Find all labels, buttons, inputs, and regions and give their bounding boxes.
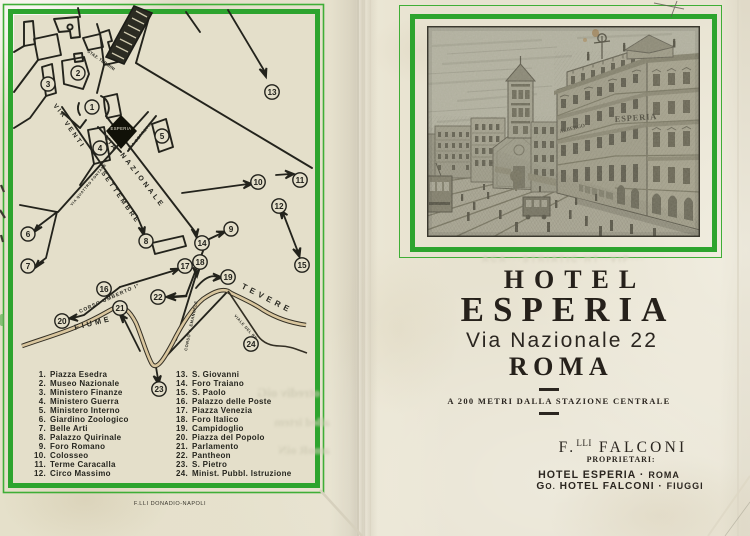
svg-text:14.: 14. — [176, 379, 188, 388]
svg-text:Ministero Finanze: Ministero Finanze — [50, 388, 123, 397]
svg-text:Terme Caracalla: Terme Caracalla — [50, 460, 116, 469]
svg-text:12.: 12. — [34, 469, 46, 478]
svg-text:20: 20 — [57, 317, 67, 326]
svg-text:8: 8 — [144, 237, 149, 246]
svg-text:2: 2 — [76, 69, 81, 78]
svg-text:13: 13 — [267, 88, 277, 97]
svg-text:15.: 15. — [176, 388, 188, 397]
svg-text:11: 11 — [296, 176, 305, 185]
svg-text:S. Giovanni: S. Giovanni — [192, 370, 239, 379]
svg-text:Piazza del Popolo: Piazza del Popolo — [192, 433, 265, 442]
svg-text:2.: 2. — [39, 379, 46, 388]
svg-text:1.: 1. — [39, 370, 46, 379]
svg-text:15: 15 — [297, 261, 307, 270]
svg-text:Circo Massimo: Circo Massimo — [50, 469, 111, 478]
svg-text:19: 19 — [223, 273, 233, 282]
svg-text:20.: 20. — [176, 433, 188, 442]
svg-text:Ministero Interno: Ministero Interno — [50, 406, 120, 415]
svg-text:Minist. Pubbl. Istruzione: Minist. Pubbl. Istruzione — [192, 469, 292, 478]
svg-text:Belle Arti: Belle Arti — [50, 424, 88, 433]
svg-text:24.: 24. — [176, 469, 188, 478]
svg-text:6: 6 — [26, 230, 31, 239]
svg-text:11.: 11. — [34, 460, 46, 469]
svg-text:17: 17 — [180, 262, 190, 271]
svg-text:12: 12 — [274, 202, 284, 211]
svg-text:18: 18 — [195, 258, 205, 267]
svg-text:S. Pietro: S. Pietro — [192, 460, 227, 469]
svg-text:5: 5 — [160, 132, 165, 141]
svg-text:Giardino Zoologico: Giardino Zoologico — [50, 415, 129, 424]
svg-text:F.LLI DONADIO-NAPOLI: F.LLI DONADIO-NAPOLI — [134, 501, 206, 507]
svg-text:Piazza Venezia: Piazza Venezia — [192, 406, 252, 415]
svg-text:4: 4 — [98, 144, 103, 153]
svg-text:22: 22 — [153, 293, 163, 302]
svg-text:22.: 22. — [176, 451, 188, 460]
svg-text:Ministero Guerra: Ministero Guerra — [50, 397, 119, 406]
svg-text:7: 7 — [26, 262, 31, 271]
svg-text:14: 14 — [197, 239, 207, 248]
svg-text:Foro Romano: Foro Romano — [50, 442, 105, 451]
svg-text:3: 3 — [46, 80, 51, 89]
svg-text:Museo Nazionale: Museo Nazionale — [50, 379, 120, 388]
svg-text:ESPERIA: ESPERIA — [111, 126, 132, 131]
svg-text:Colosseo: Colosseo — [50, 451, 88, 460]
svg-text:23: 23 — [154, 385, 164, 394]
svg-text:Palazzo Quirinale: Palazzo Quirinale — [50, 433, 122, 442]
svg-text:21: 21 — [115, 304, 125, 313]
svg-text:21.: 21. — [176, 442, 188, 451]
svg-text:10: 10 — [253, 178, 263, 187]
svg-text:1: 1 — [90, 103, 95, 112]
svg-text:9: 9 — [229, 225, 234, 234]
svg-text:9.: 9. — [39, 442, 46, 451]
svg-text:4.: 4. — [39, 397, 46, 406]
svg-text:19.: 19. — [176, 424, 188, 433]
svg-text:Piazza Esedra: Piazza Esedra — [50, 370, 108, 379]
svg-text:7.: 7. — [39, 424, 46, 433]
svg-text:5.: 5. — [39, 406, 46, 415]
svg-text:16: 16 — [99, 285, 109, 294]
svg-text:17.: 17. — [176, 406, 188, 415]
svg-text:Pantheon: Pantheon — [192, 451, 231, 460]
svg-text:24: 24 — [246, 340, 256, 349]
svg-text:16.: 16. — [176, 397, 188, 406]
svg-text:6.: 6. — [39, 415, 46, 424]
svg-text:23.: 23. — [176, 460, 188, 469]
svg-text:18.: 18. — [176, 415, 188, 424]
svg-text:10.: 10. — [34, 451, 46, 460]
svg-text:3.: 3. — [39, 388, 46, 397]
svg-text:8.: 8. — [39, 433, 46, 442]
svg-text:13.: 13. — [176, 370, 188, 379]
